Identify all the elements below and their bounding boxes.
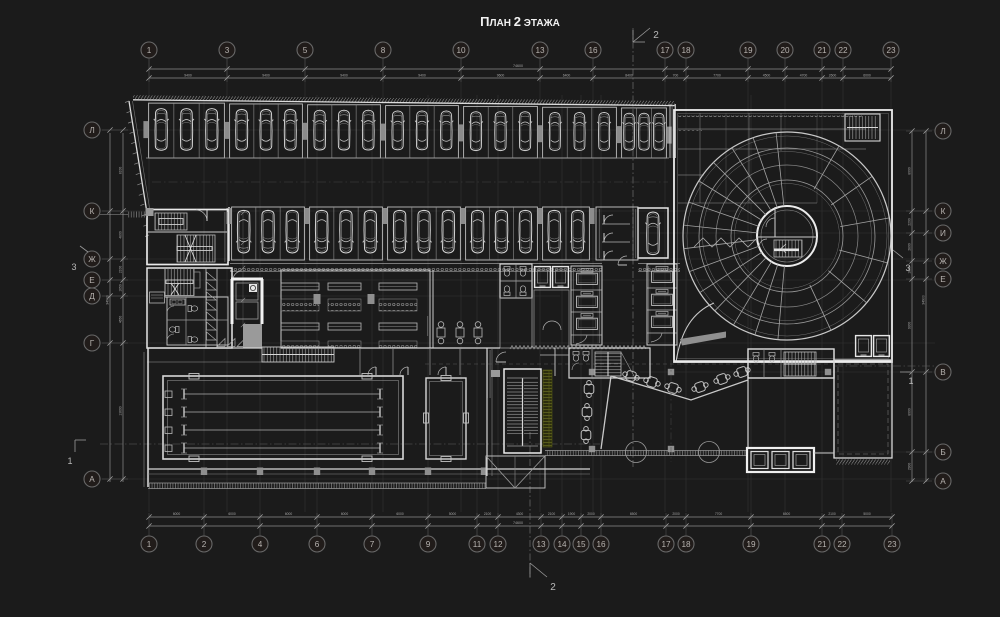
svg-text:Л: Л [940, 127, 945, 136]
svg-text:13600: 13600 [119, 406, 123, 415]
svg-text:19: 19 [746, 540, 756, 549]
svg-text:19: 19 [743, 46, 753, 55]
svg-text:Е: Е [89, 276, 95, 285]
svg-text:А: А [940, 477, 946, 486]
svg-text:1: 1 [147, 46, 152, 55]
svg-text:2100: 2100 [119, 266, 123, 274]
svg-text:16: 16 [596, 540, 606, 549]
svg-text:2100: 2100 [484, 512, 492, 516]
svg-text:10: 10 [456, 46, 466, 55]
svg-text:2100: 2100 [828, 512, 836, 516]
svg-text:В: В [940, 368, 946, 377]
svg-text:6000: 6000 [173, 512, 181, 516]
svg-text:2: 2 [550, 582, 556, 593]
svg-text:9600: 9600 [497, 73, 505, 77]
svg-text:2200: 2200 [908, 218, 912, 226]
svg-text:4700: 4700 [800, 73, 808, 77]
svg-text:6000: 6000 [863, 73, 871, 77]
svg-text:23: 23 [886, 46, 896, 55]
svg-text:К: К [90, 207, 95, 216]
svg-text:9400: 9400 [262, 73, 270, 77]
svg-text:6500: 6500 [630, 512, 638, 516]
svg-text:18: 18 [681, 46, 691, 55]
svg-text:8400: 8400 [625, 73, 633, 77]
svg-text:2000: 2000 [587, 512, 595, 516]
svg-text:22: 22 [838, 46, 848, 55]
svg-text:9: 9 [426, 540, 431, 549]
svg-text:74600: 74600 [513, 64, 523, 68]
svg-text:4300: 4300 [516, 512, 524, 516]
svg-text:8100: 8100 [119, 167, 123, 175]
svg-text:А: А [89, 475, 95, 484]
svg-text:7700: 7700 [713, 73, 721, 77]
svg-text:1: 1 [67, 456, 72, 466]
svg-text:13: 13 [536, 540, 546, 549]
svg-text:2600: 2600 [829, 73, 837, 77]
svg-text:7: 7 [370, 540, 375, 549]
svg-text:8: 8 [381, 46, 386, 55]
svg-text:12: 12 [493, 540, 503, 549]
svg-text:6: 6 [315, 540, 320, 549]
svg-text:5000: 5000 [863, 512, 871, 516]
svg-text:15: 15 [576, 540, 586, 549]
svg-text:К: К [941, 207, 946, 216]
svg-text:2: 2 [653, 30, 659, 41]
svg-text:8000: 8000 [908, 408, 912, 416]
svg-text:И: И [940, 229, 946, 238]
svg-text:34900: 34900 [922, 295, 926, 305]
svg-text:4500: 4500 [763, 73, 771, 77]
svg-text:6000: 6000 [396, 512, 404, 516]
svg-text:Ж: Ж [939, 257, 947, 266]
svg-text:1: 1 [908, 376, 913, 386]
svg-text:6500: 6500 [783, 512, 791, 516]
svg-text:11: 11 [473, 540, 482, 549]
svg-text:9400: 9400 [418, 73, 426, 77]
svg-text:Г: Г [90, 339, 95, 348]
svg-text:Б: Б [940, 448, 945, 457]
svg-text:1: 1 [147, 540, 152, 549]
svg-text:2800: 2800 [908, 243, 912, 251]
svg-text:14: 14 [557, 540, 567, 549]
svg-text:5000: 5000 [449, 512, 457, 516]
svg-text:4: 4 [258, 540, 263, 549]
svg-text:4800: 4800 [119, 231, 123, 239]
svg-text:9400: 9400 [184, 73, 192, 77]
svg-text:22: 22 [837, 540, 847, 549]
svg-text:2900: 2900 [908, 463, 912, 471]
svg-text:700: 700 [673, 73, 679, 77]
svg-text:5: 5 [303, 46, 308, 55]
svg-text:6000: 6000 [341, 512, 349, 516]
svg-text:21: 21 [817, 46, 827, 55]
svg-text:17: 17 [660, 46, 670, 55]
svg-text:3: 3 [71, 262, 76, 272]
svg-text:16: 16 [588, 46, 598, 55]
svg-text:2000: 2000 [672, 512, 680, 516]
svg-text:Е: Е [940, 275, 946, 284]
svg-text:7700: 7700 [715, 512, 723, 516]
svg-text:18: 18 [681, 540, 691, 549]
svg-text:34900: 34900 [106, 295, 110, 305]
svg-text:Ж: Ж [88, 255, 96, 264]
svg-text:74600: 74600 [513, 521, 523, 525]
svg-text:3: 3 [905, 263, 910, 273]
svg-text:13: 13 [535, 46, 545, 55]
svg-text:1900: 1900 [568, 512, 576, 516]
svg-text:Д: Д [89, 292, 95, 301]
svg-text:6400: 6400 [563, 73, 571, 77]
svg-text:2100: 2100 [548, 512, 556, 516]
svg-text:23: 23 [887, 540, 897, 549]
svg-text:9400: 9400 [340, 73, 348, 77]
svg-text:1650: 1650 [119, 284, 123, 292]
svg-text:4650: 4650 [119, 316, 123, 324]
svg-text:9300: 9300 [908, 322, 912, 330]
svg-text:3: 3 [225, 46, 230, 55]
svg-text:6000: 6000 [285, 512, 293, 516]
svg-text:20: 20 [780, 46, 790, 55]
svg-text:8000: 8000 [908, 167, 912, 175]
svg-text:21: 21 [817, 540, 827, 549]
svg-text:17: 17 [661, 540, 671, 549]
svg-text:Л: Л [89, 126, 94, 135]
svg-text:6000: 6000 [228, 512, 236, 516]
svg-text:2: 2 [202, 540, 207, 549]
